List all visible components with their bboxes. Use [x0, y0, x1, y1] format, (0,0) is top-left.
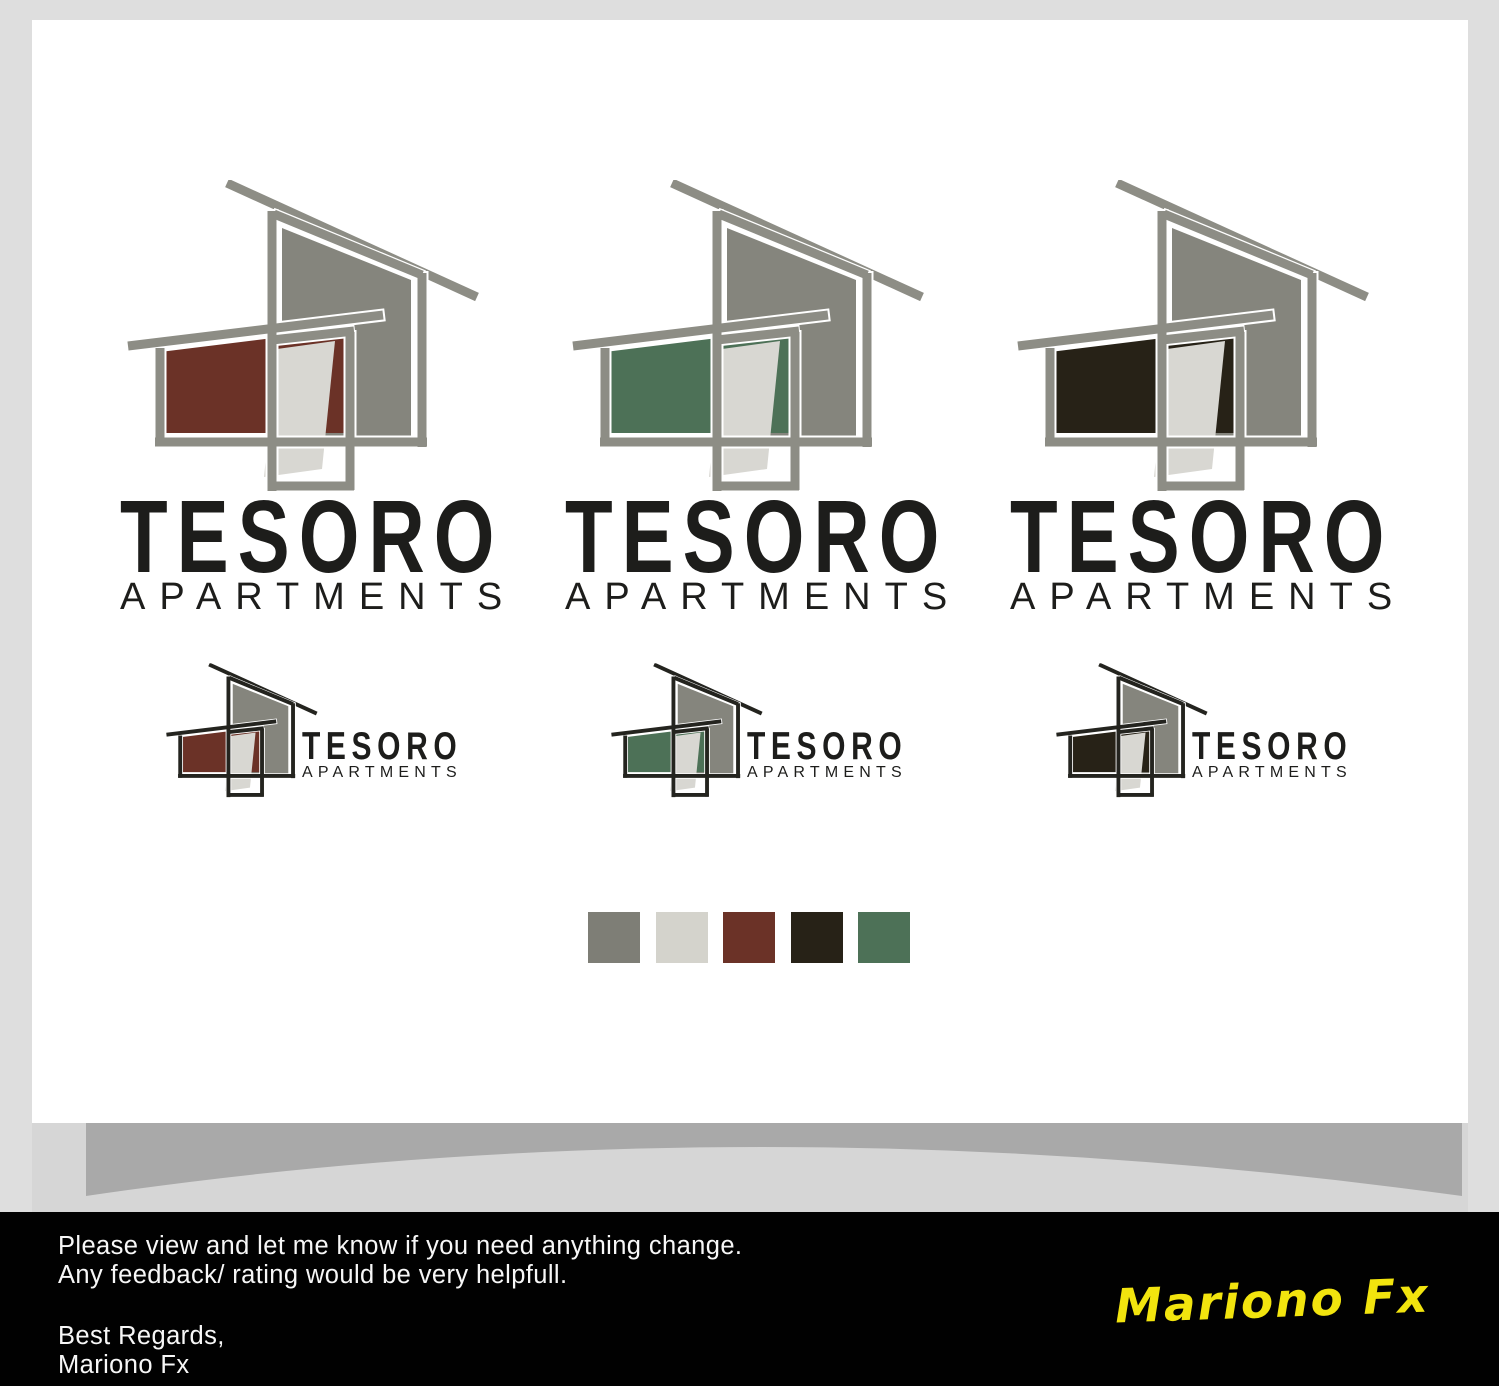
house-icon	[120, 180, 480, 495]
logo-tagline: APARTMENTS	[565, 578, 930, 616]
presentation-page: TESORO APARTMENTS TESORO APARTMENTS TESO…	[0, 0, 1499, 1386]
logo-tagline: APARTMENTS	[1192, 765, 1352, 781]
logo-tagline: APARTMENTS	[120, 578, 485, 616]
color-palette	[588, 912, 910, 963]
logo-wordmark: TESORO	[120, 485, 485, 588]
house-icon	[608, 663, 763, 799]
logo-tagline: APARTMENTS	[747, 765, 907, 781]
logo-wordmark: TESORO	[302, 728, 462, 767]
palette-swatch-brick	[723, 912, 775, 963]
footer-message-line1: Please view and let me know if you need …	[58, 1234, 742, 1260]
house-icon	[1010, 180, 1370, 495]
logo-wordmark: TESORO	[1010, 485, 1375, 588]
footer-message-line2: Any feedback/ rating would be very helpf…	[58, 1263, 567, 1289]
logo-tagline: APARTMENTS	[302, 765, 462, 781]
logo-large-green: TESORO APARTMENTS	[565, 180, 930, 640]
footer-author: Mariono Fx	[58, 1353, 190, 1379]
footer-closing: Best Regards,	[58, 1324, 225, 1350]
house-icon	[1053, 663, 1208, 799]
logo-large-brick: TESORO APARTMENTS	[120, 180, 485, 640]
designer-signature: Mariono Fx	[1114, 1273, 1430, 1331]
house-icon	[163, 663, 318, 799]
logo-tagline: APARTMENTS	[1010, 578, 1375, 616]
logo-wordmark: TESORO	[1192, 728, 1352, 767]
logo-large-dark: TESORO APARTMENTS	[1010, 180, 1375, 640]
decorative-band	[32, 1123, 1468, 1212]
logo-wordmark: TESORO	[565, 485, 930, 588]
house-icon	[565, 180, 925, 495]
logo-small-brick: TESORO APARTMENTS	[163, 663, 463, 813]
logo-small-dark: TESORO APARTMENTS	[1053, 663, 1353, 813]
logo-small-green: TESORO APARTMENTS	[608, 663, 908, 813]
palette-swatch-lightgray	[656, 912, 708, 963]
logo-wordmark: TESORO	[747, 728, 907, 767]
palette-swatch-gray	[588, 912, 640, 963]
palette-swatch-green	[858, 912, 910, 963]
palette-swatch-dark	[791, 912, 843, 963]
